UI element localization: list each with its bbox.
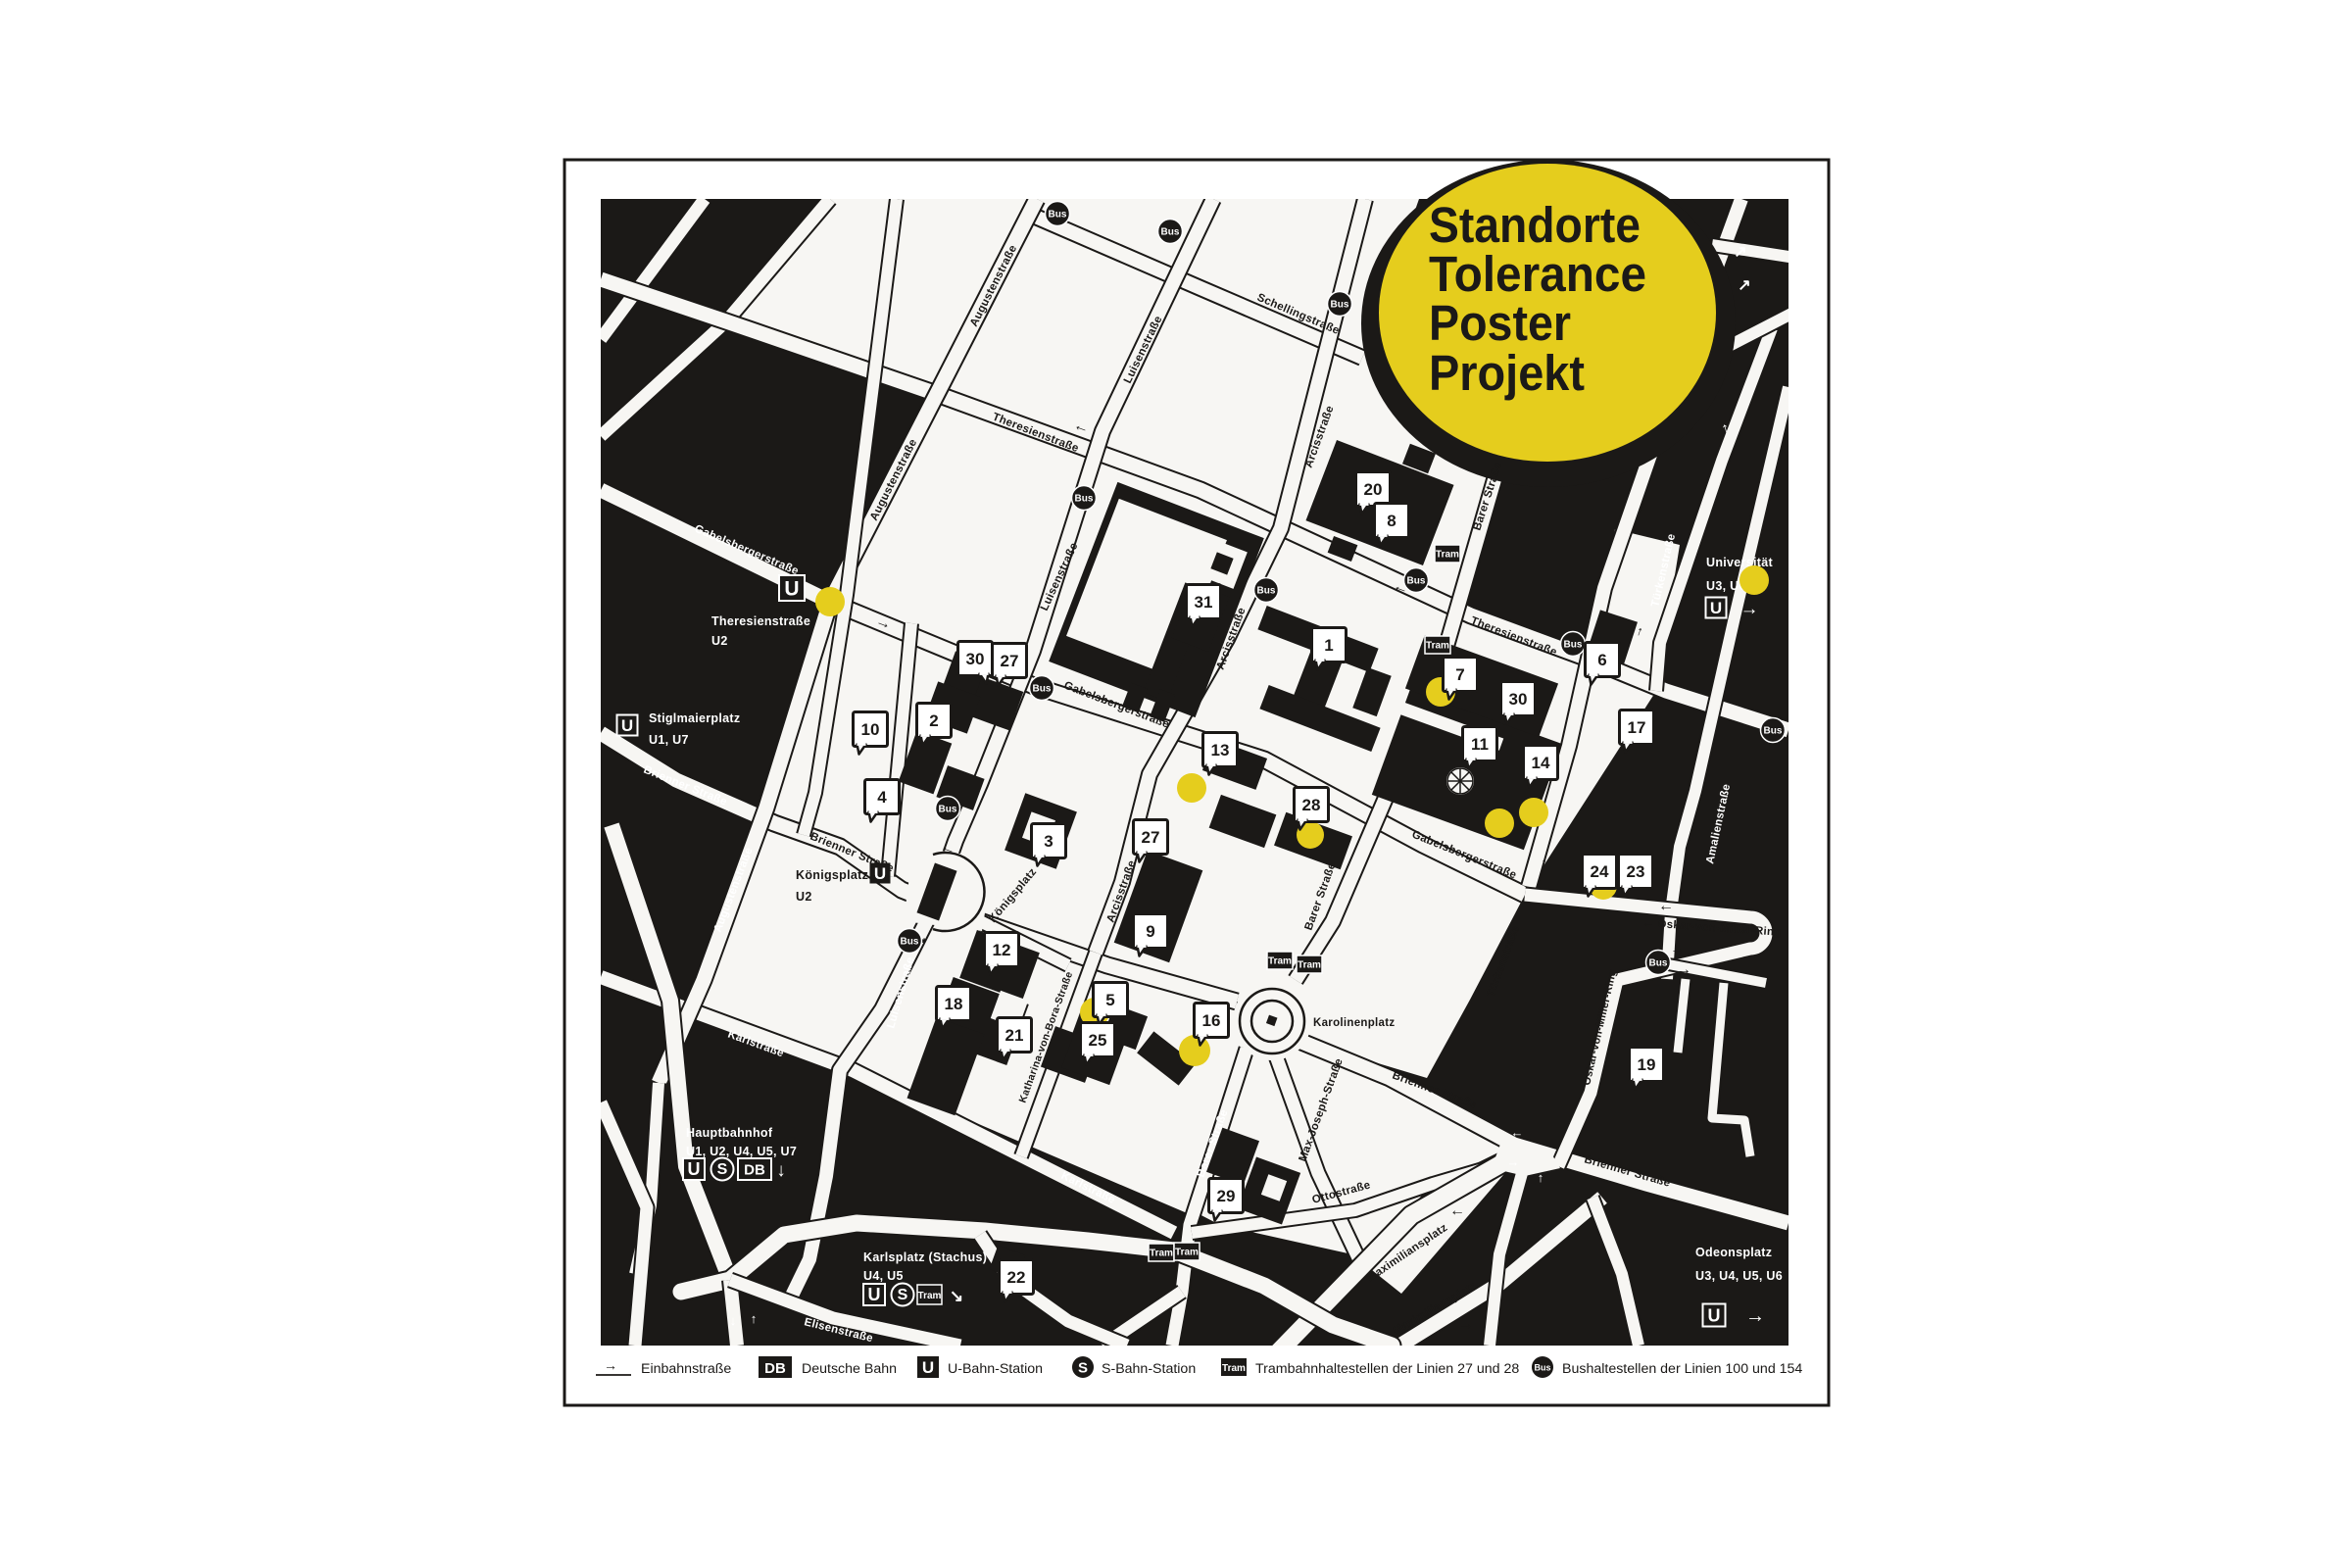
svg-text:1: 1	[1324, 636, 1333, 655]
svg-text:9: 9	[1146, 922, 1154, 941]
svg-text:Trambahnhaltestellen der Linie: Trambahnhaltestellen der Linien 27 und 2…	[1255, 1361, 1519, 1377]
svg-text:U-Bahn-Station: U-Bahn-Station	[948, 1361, 1043, 1377]
svg-text:Deutsche Bahn: Deutsche Bahn	[802, 1361, 897, 1377]
svg-text:Bus: Bus	[1764, 726, 1783, 737]
svg-text:↘: ↘	[950, 1287, 963, 1305]
svg-text:Bus: Bus	[1049, 210, 1067, 220]
svg-text:↗: ↗	[1738, 277, 1750, 294]
svg-text:→: →	[1458, 1316, 1474, 1333]
svg-text:Bus: Bus	[901, 937, 919, 948]
svg-text:→: →	[1670, 941, 1686, 957]
svg-text:4: 4	[877, 788, 887, 807]
svg-text:→: →	[604, 1357, 617, 1373]
svg-text:Karolinenplatz: Karolinenplatz	[1313, 1017, 1395, 1029]
svg-text:U: U	[1710, 599, 1722, 617]
svg-text:U3, U4, U5, U6: U3, U4, U5, U6	[1695, 1269, 1783, 1283]
svg-text:27: 27	[1142, 828, 1160, 847]
svg-text:←: ←	[1449, 1202, 1465, 1219]
svg-text:Tram: Tram	[918, 1291, 942, 1301]
svg-text:Tram: Tram	[1298, 960, 1321, 971]
svg-text:S: S	[1078, 1360, 1088, 1377]
svg-text:Einbahnstraße: Einbahnstraße	[641, 1361, 731, 1377]
svg-text:→: →	[1740, 599, 1759, 619]
svg-text:S-Bahn-Station: S-Bahn-Station	[1102, 1361, 1196, 1377]
svg-text:Tram: Tram	[1426, 641, 1449, 652]
svg-text:29: 29	[1217, 1187, 1236, 1205]
svg-text:↓: ↓	[776, 1160, 786, 1181]
svg-text:U1, U7: U1, U7	[649, 733, 689, 747]
svg-text:U: U	[922, 1358, 934, 1377]
svg-text:Bus: Bus	[1331, 300, 1349, 311]
svg-text:Tram: Tram	[1436, 550, 1459, 561]
svg-text:30: 30	[966, 650, 985, 668]
svg-text:Tram: Tram	[1268, 956, 1292, 967]
svg-text:DB: DB	[764, 1360, 786, 1377]
svg-text:Projekt: Projekt	[1429, 345, 1585, 401]
svg-text:S: S	[898, 1287, 908, 1303]
svg-text:Bus: Bus	[1257, 586, 1276, 597]
svg-text:27: 27	[1001, 652, 1019, 670]
svg-text:→: →	[1745, 1305, 1765, 1327]
svg-text:Karlsplatz (Stachus): Karlsplatz (Stachus)	[863, 1250, 987, 1264]
svg-text:Theresienstraße: Theresienstraße	[711, 614, 810, 628]
svg-text:Tram: Tram	[1222, 1363, 1246, 1374]
svg-text:Standorte: Standorte	[1429, 197, 1641, 253]
svg-text:25: 25	[1089, 1031, 1107, 1050]
svg-text:Tram: Tram	[1175, 1248, 1199, 1258]
svg-text:←: ←	[1658, 898, 1674, 914]
svg-text:16: 16	[1202, 1011, 1221, 1030]
svg-text:U: U	[784, 577, 799, 600]
svg-text:Bus: Bus	[939, 805, 957, 815]
svg-text:30: 30	[1509, 690, 1528, 709]
svg-text:↑: ↑	[1538, 1170, 1544, 1185]
svg-text:Bus: Bus	[1534, 1363, 1550, 1373]
svg-text:Hauptbahnhof: Hauptbahnhof	[686, 1126, 773, 1140]
svg-text:Königsplatz: Königsplatz	[796, 868, 868, 882]
svg-text:Poster: Poster	[1429, 295, 1571, 351]
svg-text:→: →	[1676, 961, 1691, 978]
svg-text:S: S	[717, 1161, 728, 1178]
svg-text:U1, U2, U4, U5, U7: U1, U2, U4, U5, U7	[686, 1145, 797, 1158]
svg-text:U: U	[868, 1285, 881, 1304]
svg-text:5: 5	[1105, 991, 1114, 1009]
svg-text:14: 14	[1532, 754, 1550, 772]
svg-text:U2: U2	[711, 634, 728, 648]
svg-text:Tram: Tram	[1150, 1249, 1173, 1259]
svg-text:Stiglmaierplatz: Stiglmaierplatz	[649, 711, 740, 725]
svg-text:→: →	[1507, 1154, 1520, 1169]
svg-text:U: U	[1708, 1305, 1721, 1325]
svg-text:Bus: Bus	[1407, 576, 1426, 587]
svg-text:24: 24	[1591, 862, 1609, 881]
svg-text:Bus: Bus	[1564, 640, 1583, 651]
svg-text:Tolerance: Tolerance	[1429, 246, 1646, 302]
svg-text:Bus: Bus	[1033, 684, 1052, 695]
svg-text:23: 23	[1627, 862, 1645, 881]
svg-text:Bus: Bus	[1075, 494, 1094, 505]
svg-text:U4, U5: U4, U5	[863, 1269, 904, 1283]
svg-text:7: 7	[1455, 665, 1464, 684]
svg-text:12: 12	[993, 941, 1011, 959]
svg-text:3: 3	[1044, 832, 1053, 851]
svg-text:DB: DB	[744, 1162, 765, 1179]
svg-text:22: 22	[1007, 1268, 1026, 1287]
svg-text:18: 18	[945, 995, 963, 1013]
svg-text:8: 8	[1387, 512, 1396, 530]
svg-text:31: 31	[1195, 593, 1213, 612]
svg-text:U: U	[688, 1159, 701, 1179]
svg-text:10: 10	[861, 720, 880, 739]
svg-text:Odeonsplatz: Odeonsplatz	[1695, 1246, 1772, 1259]
svg-text:Bus: Bus	[1161, 227, 1180, 238]
svg-text:↑: ↑	[751, 1311, 758, 1326]
svg-text:21: 21	[1005, 1026, 1024, 1045]
svg-text:Bushaltestellen der Linien 100: Bushaltestellen der Linien 100 und 154	[1562, 1361, 1802, 1377]
svg-text:17: 17	[1628, 718, 1646, 737]
svg-text:Bus: Bus	[1649, 958, 1668, 969]
svg-text:↓: ↓	[730, 1313, 737, 1328]
svg-text:19: 19	[1638, 1055, 1656, 1074]
svg-text:6: 6	[1597, 651, 1606, 669]
svg-text:11: 11	[1471, 735, 1489, 754]
svg-text:Universität: Universität	[1706, 556, 1773, 569]
svg-text:U2: U2	[796, 890, 812, 904]
svg-text:28: 28	[1302, 796, 1321, 814]
svg-text:U: U	[874, 864, 886, 883]
svg-text:13: 13	[1211, 741, 1230, 759]
svg-text:20: 20	[1364, 480, 1383, 499]
svg-text:U: U	[621, 716, 633, 735]
svg-text:←: ←	[1511, 1125, 1524, 1140]
svg-text:2: 2	[929, 711, 938, 730]
svg-text:↗: ↗	[1734, 244, 1746, 261]
